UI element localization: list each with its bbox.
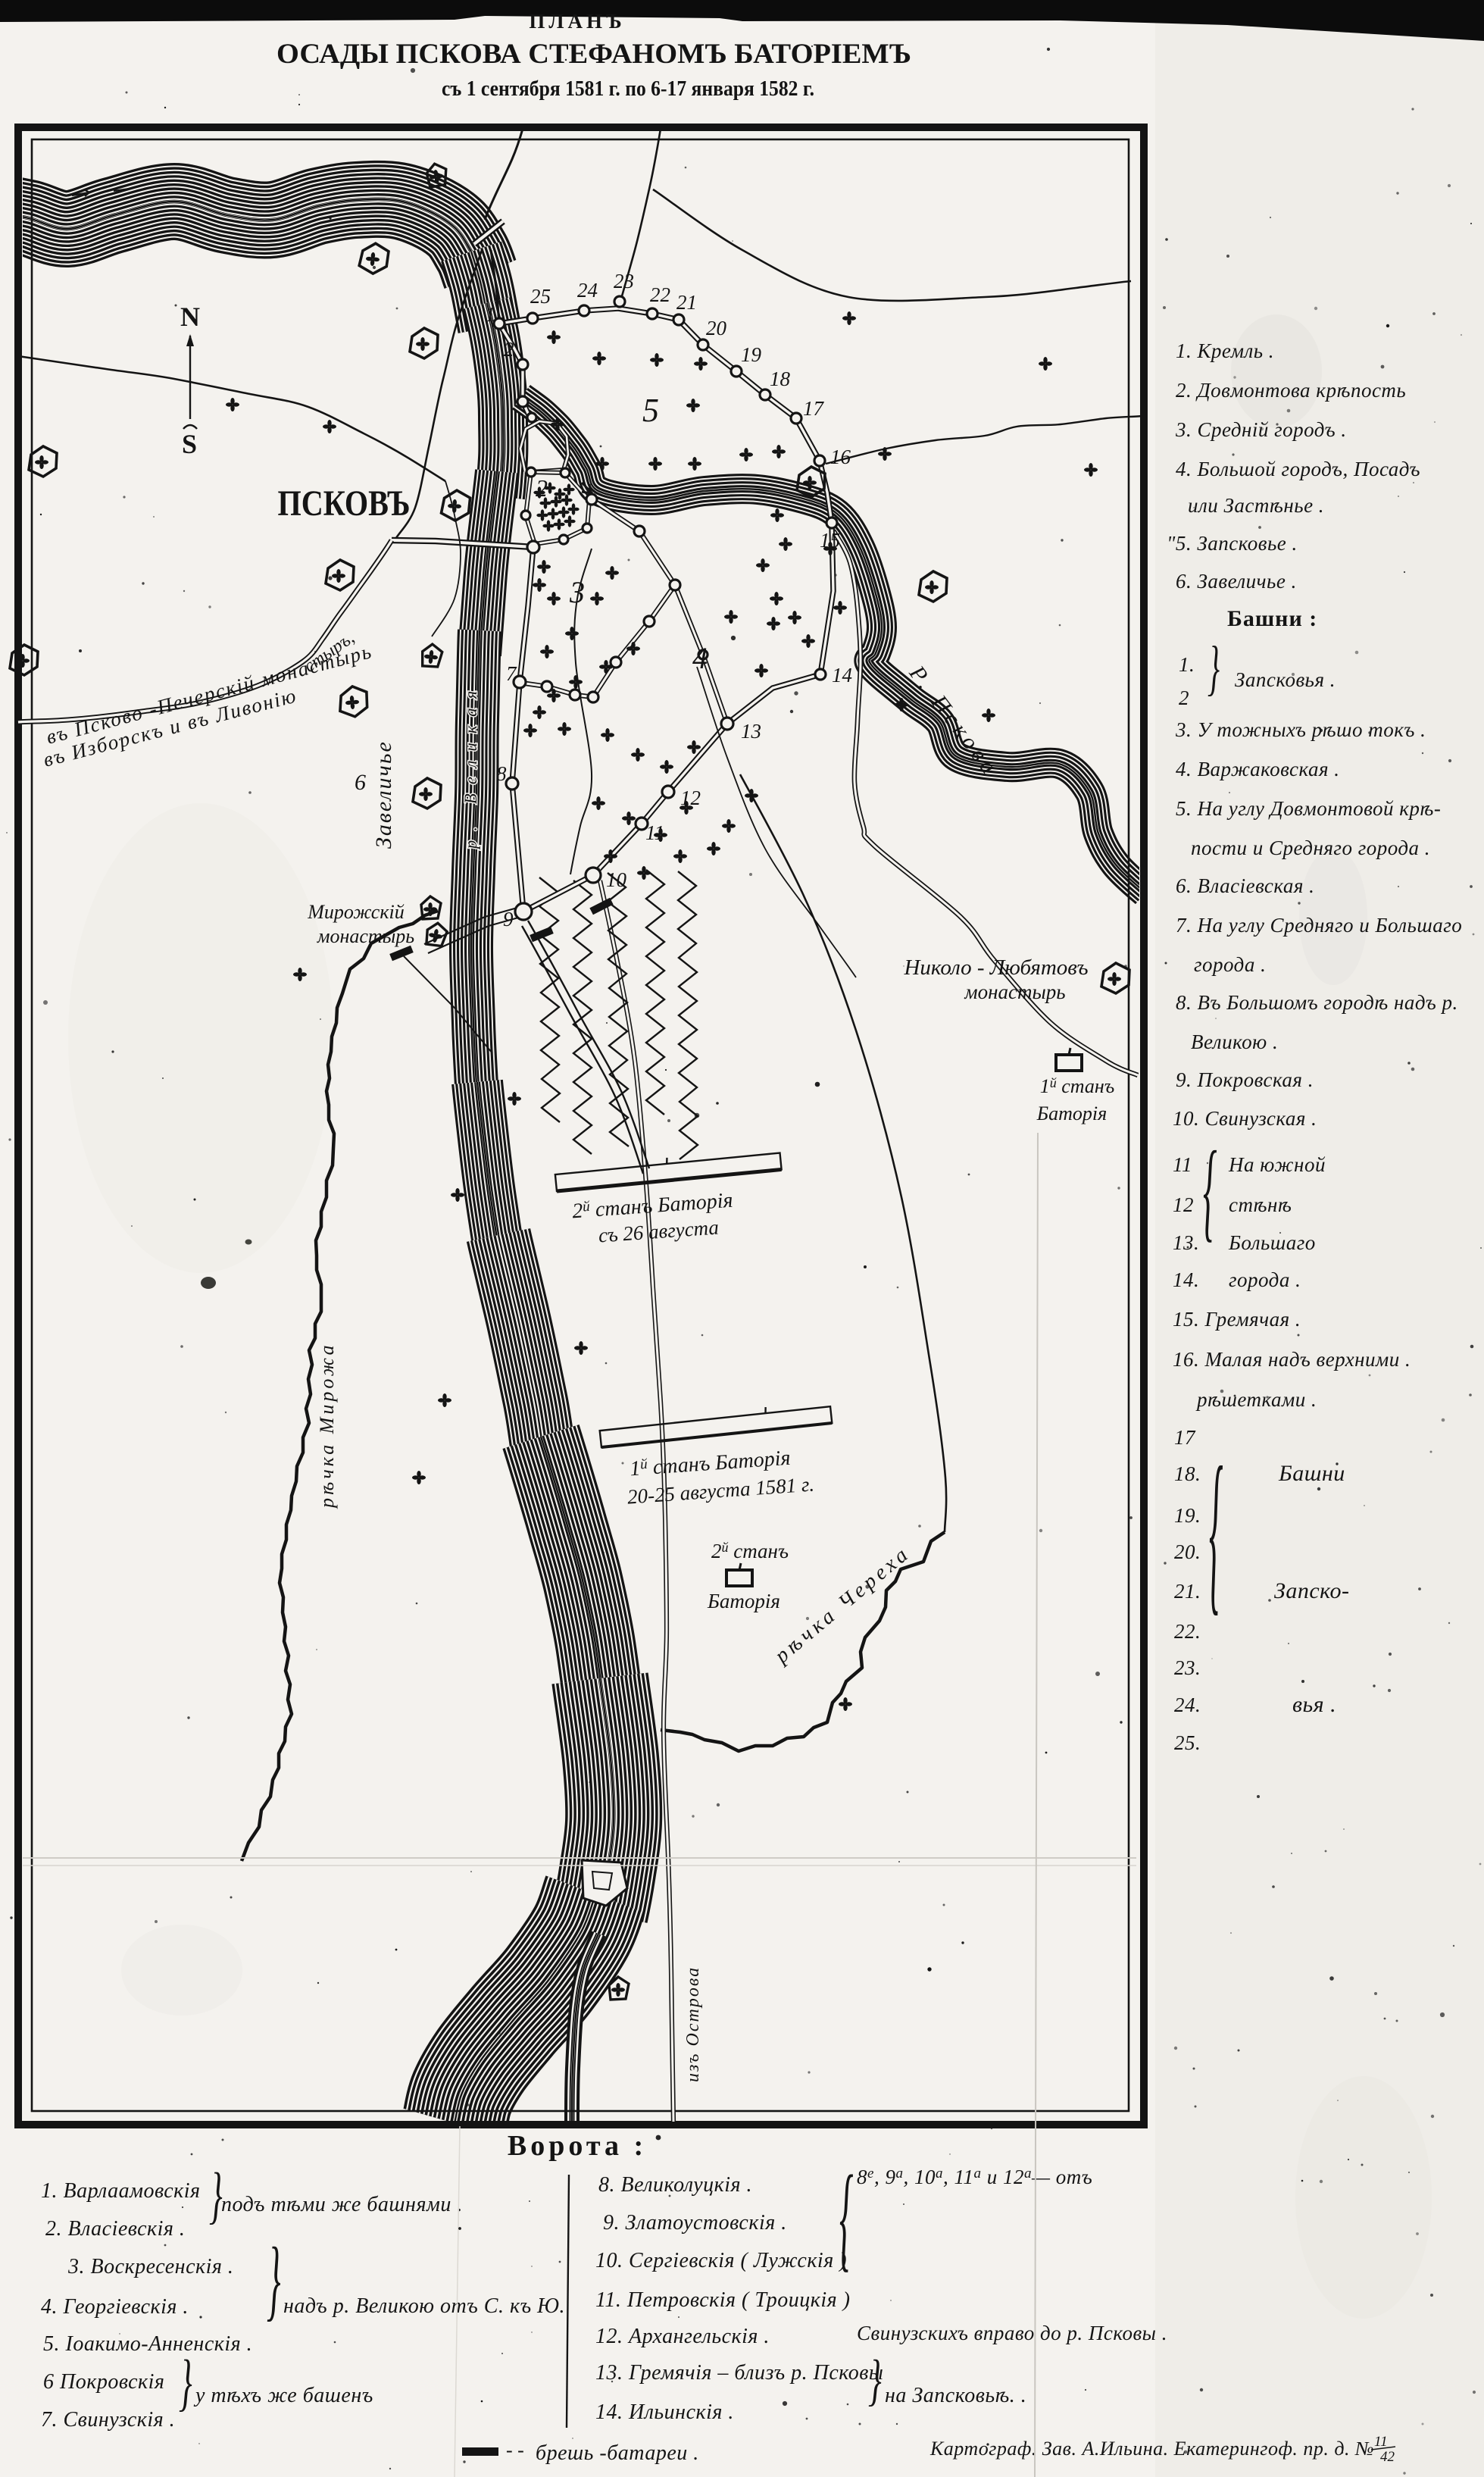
svg-text:города .: города . [1194, 953, 1266, 976]
svg-text:4. Георгіевскія .: 4. Георгіевскія . [41, 2295, 189, 2319]
svg-text:1.: 1. [1179, 653, 1195, 676]
svg-text:11: 11 [1173, 1153, 1192, 1176]
svg-text:рѣчка Мирожа: рѣчка Мирожа [316, 1342, 338, 1509]
svg-text:2: 2 [504, 338, 514, 361]
svg-text:8. Великолуцкія .: 8. Великолуцкія . [598, 2173, 752, 2197]
svg-text:3. Воскресенскія .: 3. Воскресенскія . [67, 2255, 233, 2278]
svg-text:Ворота :: Ворота : [508, 2130, 647, 2162]
svg-text:N: N [180, 302, 200, 332]
svg-text:8. Въ Большомъ городѣ надъ р.: 8. Въ Большомъ городѣ надъ р. [1176, 991, 1458, 1014]
svg-text:{: { [1209, 1431, 1223, 1631]
svg-text:или Застѣнье .: или Застѣнье . [1188, 494, 1324, 517]
svg-text:стѣнѣ: стѣнѣ [1229, 1193, 1292, 1216]
svg-text:22: 22 [650, 283, 670, 306]
svg-text:19: 19 [741, 343, 762, 366]
svg-text:16. Малая надъ верхними .: 16. Малая надъ верхними . [1173, 1348, 1411, 1371]
svg-text:ОСАДЫ ПСКОВА СТЕФАНОМЪ БАТО: ОСАДЫ ПСКОВА СТЕФАНОМЪ БАТОРІЕМЪ [276, 39, 911, 70]
svg-text:10: 10 [606, 868, 627, 891]
svg-text:Завеличье: Завеличье [371, 740, 396, 849]
svg-text:рѣшетками .: рѣшетками . [1195, 1388, 1317, 1411]
svg-text:14: 14 [832, 664, 852, 686]
svg-text:2. Власіевскія .: 2. Власіевскія . [45, 2217, 185, 2241]
svg-text:"5. Запсковье .: "5. Запсковье . [1167, 532, 1298, 555]
svg-text:11: 11 [1374, 2434, 1388, 2450]
svg-text:Башни: Башни [1278, 1461, 1345, 1486]
svg-text:15. Гремячая .: 15. Гремячая . [1173, 1308, 1301, 1331]
svg-text:у тѣхъ же башенъ: у тѣхъ же башенъ [193, 2384, 373, 2407]
svg-text:}: } [179, 2347, 192, 2418]
svg-text:6. Власіевская .: 6. Власіевская . [1176, 874, 1314, 897]
svg-text:8: 8 [496, 762, 507, 785]
svg-text:42: 42 [1380, 2449, 1395, 2465]
svg-text:9. Златоустовскія .: 9. Златоустовскія . [603, 2211, 787, 2235]
svg-text:6. Завеличье .: 6. Завеличье . [1176, 570, 1297, 593]
svg-text:Картограф. Зав. А.Ильина. Екат: Картограф. Зав. А.Ильина. Екатерингоф. п… [929, 2438, 1374, 2460]
svg-text:- -: - - [506, 2439, 524, 2461]
svg-text:7. На углу Средняго и Большаго: 7. На углу Средняго и Большаго [1176, 914, 1462, 937]
svg-text:1: 1 [485, 303, 495, 326]
svg-text:4. Большой городъ, Посадъ: 4. Большой городъ, Посадъ [1176, 458, 1420, 480]
svg-text:10. Свинузская .: 10. Свинузская . [1173, 1107, 1317, 1130]
svg-text:14. Ильинскія .: 14. Ильинскія . [595, 2400, 734, 2424]
svg-text:1. Кремль .: 1. Кремль . [1176, 339, 1274, 362]
svg-text:17: 17 [1174, 1426, 1196, 1449]
svg-text:10. Сергіевскія ( Лужскія ): 10. Сергіевскія ( Лужскія ) [595, 2249, 847, 2272]
svg-text:9. Покровская .: 9. Покровская . [1176, 1068, 1314, 1091]
svg-text:}: } [267, 2228, 280, 2329]
svg-text:Запсковья .: Запсковья . [1235, 668, 1336, 691]
svg-text:надъ р. Великою отъ С. къ Ю.: надъ р. Великою отъ С. къ Ю. [283, 2294, 565, 2318]
svg-text:изъ Острова: изъ Острова [683, 1966, 703, 2082]
svg-text:20.: 20. [1174, 1540, 1201, 1563]
svg-text:13. Гремячія – близъ р. Псковы: 13. Гремячія – близъ р. Псковы [595, 2361, 883, 2385]
svg-text:7: 7 [506, 662, 517, 685]
svg-text:6: 6 [355, 770, 366, 795]
svg-text:22.: 22. [1174, 1620, 1201, 1643]
svg-text:5. На углу Довмонтовой крѣ-: 5. На углу Довмонтовой крѣ- [1176, 797, 1441, 820]
svg-text:подъ тѣми же башнями .: подъ тѣми же башнями . [221, 2193, 463, 2216]
svg-text:пости и Средняго города .: пости и Средняго города . [1191, 837, 1430, 859]
svg-text:Мирожскій: Мирожскій [307, 901, 404, 923]
svg-text:19.: 19. [1174, 1504, 1201, 1527]
svg-text:12. Архангельскія .: 12. Архангельскія . [595, 2325, 770, 2348]
svg-text:23.: 23. [1174, 1656, 1201, 1679]
svg-text:18.: 18. [1174, 1462, 1201, 1485]
svg-text:17: 17 [803, 397, 825, 420]
svg-text:14.: 14. [1173, 1268, 1199, 1291]
svg-text:25: 25 [530, 285, 551, 308]
svg-text:р. Великая: р. Великая [461, 682, 480, 851]
svg-text:{: { [839, 2150, 853, 2282]
svg-text:вья .: вья . [1292, 1692, 1336, 1717]
svg-text:ПСКОВЪ: ПСКОВЪ [278, 483, 411, 524]
svg-text:20: 20 [706, 317, 727, 339]
svg-text:}: } [1208, 634, 1220, 702]
svg-text:4. Варжаковская .: 4. Варжаковская . [1176, 758, 1340, 780]
svg-text:9: 9 [503, 908, 514, 930]
svg-text:4: 4 [692, 641, 708, 675]
svg-text:2: 2 [1179, 686, 1189, 709]
svg-text:Запско-: Запско- [1274, 1578, 1350, 1603]
svg-text:3: 3 [569, 575, 585, 609]
svg-text:Николо - Любятовъ: Николо - Любятовъ [903, 955, 1088, 980]
svg-text:2. Довмонтова крѣпость: 2. Довмонтова крѣпость [1176, 379, 1406, 402]
svg-text:13.: 13. [1173, 1231, 1199, 1254]
svg-text:Баторія: Баторія [1036, 1102, 1107, 1124]
svg-text:съ 1 сентября 1581 г. по 6-17: съ 1 сентября 1581 г. по 6-17 января 158… [442, 77, 814, 101]
svg-text:21: 21 [676, 291, 697, 314]
svg-text:На южной: На южной [1228, 1153, 1326, 1176]
svg-text:Свинузскихъ вправо до р. Пск: Свинузскихъ вправо до р. Псковы . [857, 2322, 1167, 2344]
svg-text:на Запсковьѣ. .: на Запсковьѣ. . [885, 2384, 1026, 2407]
svg-text:Баторія: Баторія [707, 1590, 780, 1612]
svg-text:13: 13 [741, 720, 761, 743]
svg-text:{: { [1203, 1128, 1217, 1252]
svg-text:16: 16 [830, 446, 851, 468]
svg-text:Большаго: Большаго [1228, 1231, 1316, 1254]
svg-text:25.: 25. [1174, 1731, 1201, 1754]
svg-text:23: 23 [614, 270, 634, 292]
svg-text:ПЛАНЪ: ПЛАНЪ [529, 10, 625, 33]
svg-text:5: 5 [642, 392, 659, 429]
svg-text:24.: 24. [1174, 1694, 1201, 1716]
svg-text:11. Петровскія ( Троицкія ): 11. Петровскія ( Троицкія ) [595, 2288, 850, 2312]
svg-text:Башни :: Башни : [1227, 606, 1317, 631]
svg-text:12: 12 [1173, 1193, 1194, 1216]
svg-text:брешь -батареи .: брешь -батареи . [536, 2441, 699, 2465]
svg-text:24: 24 [577, 279, 598, 302]
svg-text:монастырь: монастырь [317, 925, 414, 947]
svg-text:3. У тожныхъ рѣшо токъ .: 3. У тожныхъ рѣшо токъ . [1175, 718, 1426, 741]
svg-text:}: } [868, 2349, 882, 2412]
svg-text:города .: города . [1229, 1268, 1301, 1291]
svg-text:1. Варлаамовскія: 1. Варлаамовскія [41, 2179, 201, 2203]
svg-text:21.: 21. [1174, 1580, 1201, 1603]
svg-text:Великою .: Великою . [1191, 1031, 1278, 1053]
svg-text:7. Свинузскія .: 7. Свинузскія . [41, 2408, 175, 2432]
svg-text:6 Покровскія: 6 Покровскія [43, 2370, 164, 2394]
svg-text:S: S [182, 429, 197, 459]
svg-text:монастырь: монастырь [964, 980, 1065, 1003]
svg-text:5. Іоакимо-Анненскія .: 5. Іоакимо-Анненскія . [43, 2332, 252, 2356]
svg-text:18: 18 [770, 367, 791, 390]
